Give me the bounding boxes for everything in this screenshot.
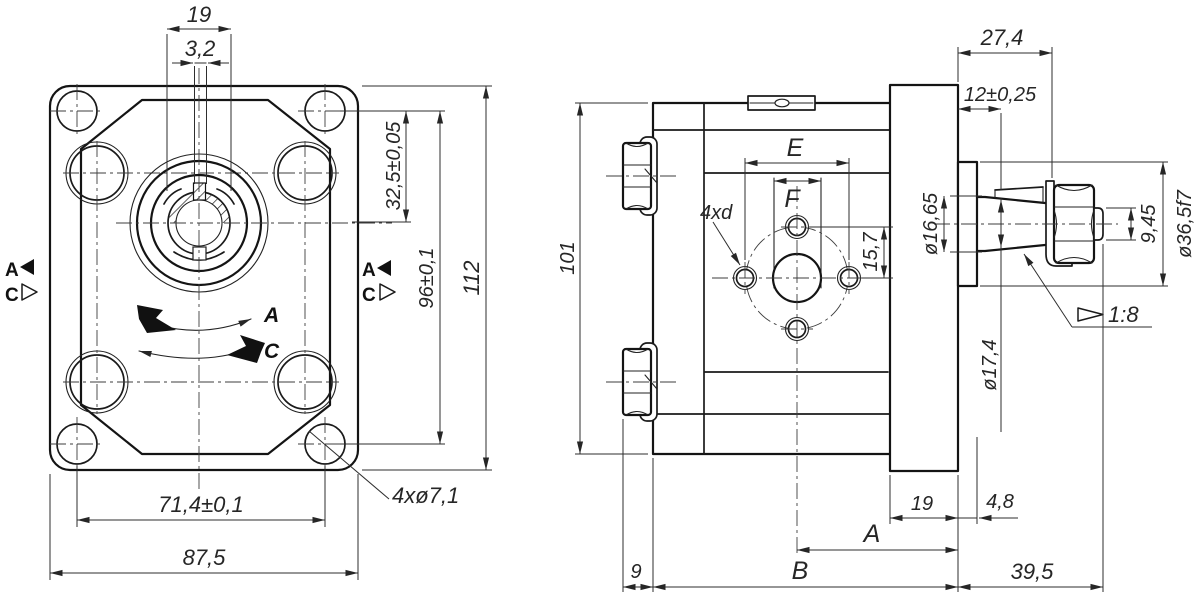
dim-key-width-label: 3,2 [185,36,216,61]
taper-annotation: 1:8 [1024,254,1152,327]
dim-port-spacing-label: E [787,134,804,162]
dim-shaft-diameter-label: ø16,65 [920,192,942,255]
mounting-flange [890,85,958,471]
dim-shaft-length-label: 27,4 [980,25,1024,50]
dim-a-label: A [862,520,881,548]
drawing-page: 19 3,2 32,5±0,05 96±0,1 112 71,4±0,1 87,… [0,0,1200,598]
shaft-assembly [934,162,1118,286]
dim-hole-spacing-vertical-label: 96±0,1 [416,247,438,308]
port-markers-right: A C [362,260,395,306]
body-bolt-holes [63,141,339,414]
dim-flange-width-label: 87,5 [183,545,227,570]
through-bolt-bottom [606,343,676,421]
bottom-tab [193,247,206,260]
dim-body-height-label: 101 [557,241,579,274]
dim-flange-thickness-label: 19 [911,493,933,515]
taper-ratio-label: 1:8 [1108,302,1139,327]
rotation-arrows: A C [137,304,280,363]
dim-thread-diameter-label: 9,45 [1138,204,1160,244]
front-view: 19 3,2 32,5±0,05 96±0,1 112 71,4±0,1 87,… [5,2,492,580]
port-marker-c: C [5,285,19,306]
dim-taper-diameter-label: ø17,4 [979,339,1001,390]
taper-symbol-icon [1078,308,1103,321]
dim-key-diameter-label: 19 [187,2,211,27]
open-arrow-icon [380,284,395,300]
rotation-label-a: A [263,304,279,327]
dim-collar-diameter-label: ø36,5f7 [1174,189,1196,258]
dim-shaft-protrusion-label: 39,5 [1011,559,1055,584]
body-plate-outline [81,100,330,454]
port-marker-c: C [362,285,376,306]
filled-arrow-icon [20,259,34,275]
dim-shaft-to-holes-label: 32,5±0,05 [383,121,405,211]
port-markers-left: A C [5,259,37,306]
port-marker-a: A [5,260,19,281]
rotation-arrow-c-icon [227,335,265,363]
through-bolt-top [606,137,676,215]
mounting-holes-label: 4xø7,1 [392,483,459,508]
dim-port-offset-label: 15,7 [860,232,882,272]
pump-technical-drawing: 19 3,2 32,5±0,05 96±0,1 112 71,4±0,1 87,… [0,0,1200,598]
dim-hole-spacing-horizontal-label: 71,4±0,1 [158,492,243,517]
center-lines [116,68,392,490]
keyway [194,183,206,200]
dim-gauge-plane-label: 12±0,25 [964,84,1037,106]
dim-front-plate-label: 9 [630,561,641,583]
dim-port-width-label: F [784,185,801,213]
port-face [712,178,884,553]
shaft-key [995,187,1043,190]
filled-arrow-icon [377,260,391,276]
side-view: 101 E F 4xd 15,7 27,4 12±0,25 ø16,65 ø17… [557,25,1196,592]
port-holes-label: 4xd [700,202,733,224]
dim-flange-height-label: 112 [459,260,484,295]
rotation-arrow-a-icon [137,305,176,333]
plate-rivet-icon [775,99,789,107]
rotation-label-c: C [264,340,280,363]
dim-collar-thickness-label: 4,8 [986,491,1014,513]
dim-b-label: B [792,557,809,585]
port-marker-a: A [362,260,376,281]
open-arrow-icon [22,284,37,300]
